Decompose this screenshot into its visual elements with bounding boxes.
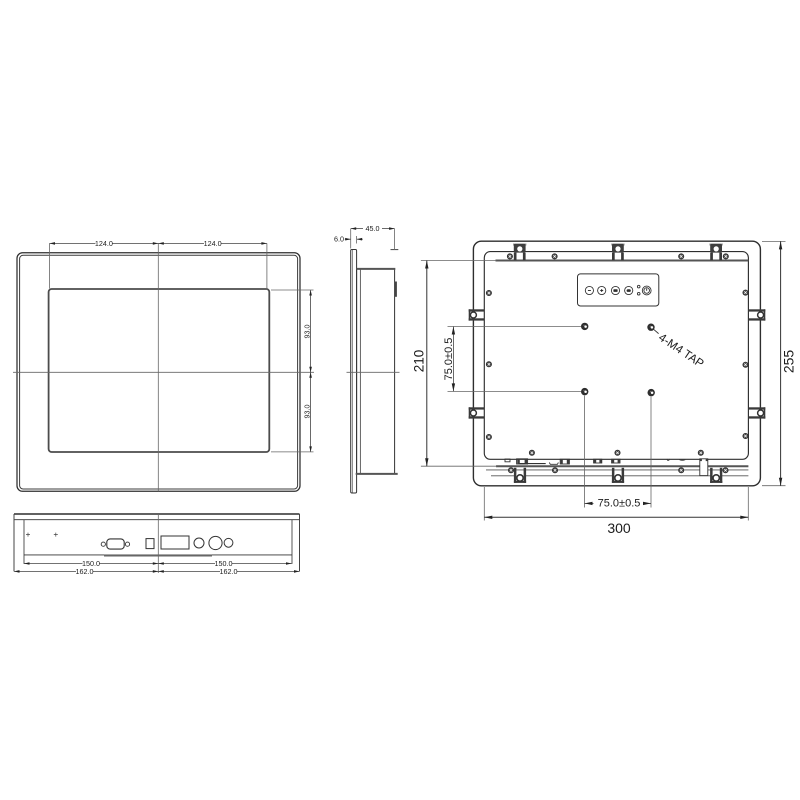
svg-text:6.0: 6.0: [334, 235, 344, 244]
svg-text:93.0: 93.0: [303, 325, 312, 339]
svg-text:45.0: 45.0: [366, 224, 380, 233]
svg-text:75.0±0.5: 75.0±0.5: [443, 338, 455, 381]
svg-text:255: 255: [780, 350, 796, 374]
svg-text:162.0: 162.0: [220, 567, 238, 576]
svg-text:93.0: 93.0: [303, 405, 312, 419]
svg-text:124.0: 124.0: [204, 239, 222, 248]
svg-text:300: 300: [607, 520, 631, 536]
svg-text:75.0±0.5: 75.0±0.5: [598, 498, 641, 510]
svg-text:210: 210: [412, 350, 427, 373]
svg-text:124.0: 124.0: [95, 239, 113, 248]
svg-text:4-M4 TAP: 4-M4 TAP: [656, 331, 706, 371]
svg-text:162.0: 162.0: [76, 567, 94, 576]
